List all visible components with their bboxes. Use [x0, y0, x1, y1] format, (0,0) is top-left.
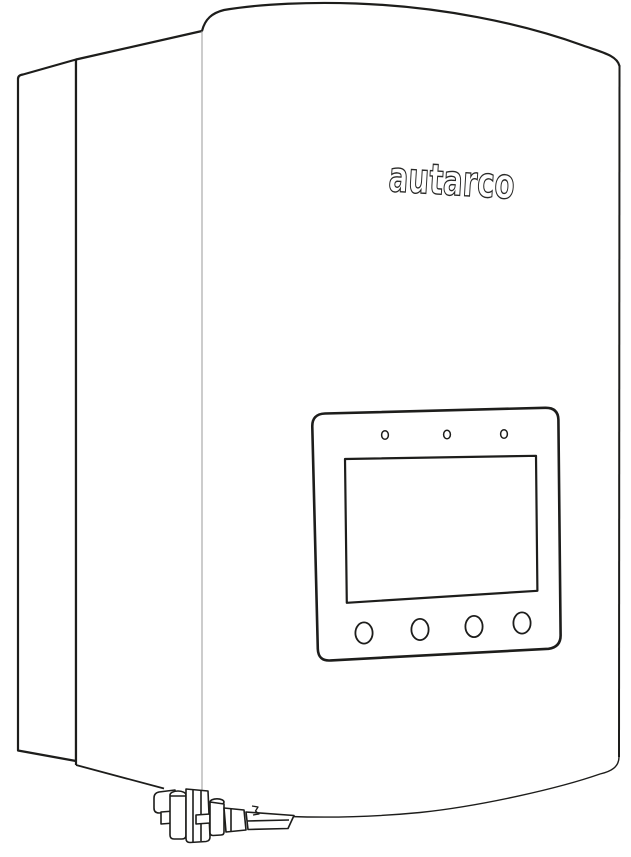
cable-gland: [170, 796, 186, 839]
illustration-canvas: autarco: [0, 0, 631, 857]
brand-logo-text: autarco: [387, 152, 516, 209]
connector-block: [224, 808, 246, 832]
display-panel: [312, 408, 560, 661]
connector-step: [196, 814, 210, 824]
control-button: [355, 622, 372, 643]
back-plate-face: [18, 60, 76, 762]
cable-gland: [210, 802, 224, 836]
status-led: [444, 430, 451, 439]
control-button: [513, 612, 530, 633]
lcd-screen: [345, 456, 537, 603]
front-cover-right-edge: [619, 66, 620, 757]
inverter-side-body: [76, 31, 202, 790]
inverter-line-drawing: autarco: [0, 0, 631, 857]
wall-mount-back-plate: [18, 60, 76, 762]
status-led: [382, 431, 389, 440]
control-button: [411, 619, 428, 640]
status-led: [501, 430, 508, 439]
bracket-detail-line: [247, 820, 289, 821]
side-body-face: [76, 31, 202, 790]
control-button: [465, 616, 482, 637]
